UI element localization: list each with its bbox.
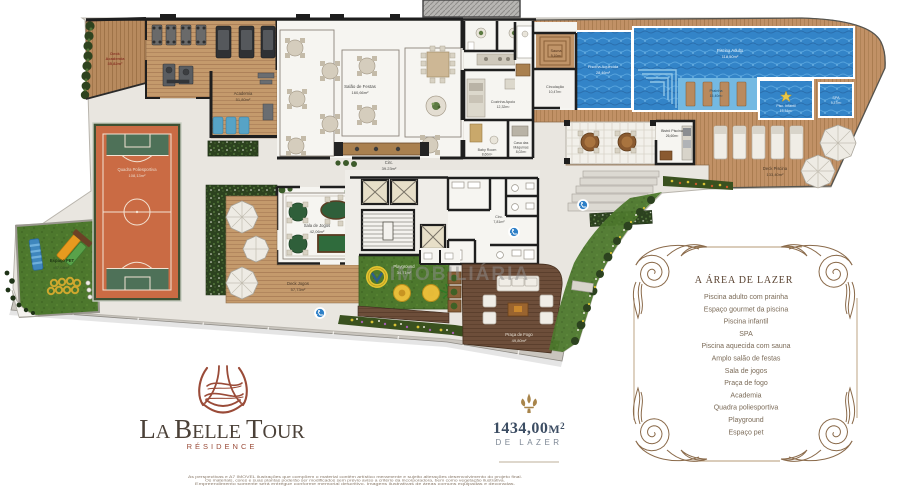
svg-text:9,37m²: 9,37m² [831,101,842,105]
svg-text:Salão de Festas: Salão de Festas [344,84,377,89]
svg-text:Circ.: Circ. [385,160,394,165]
svg-text:Circ.: Circ. [495,215,503,219]
svg-text:DE LAZER: DE LAZER [495,438,562,447]
svg-text:15,34m²: 15,34m² [780,109,793,113]
svg-text:A ÁREA DE LAZER: A ÁREA DE LAZER [695,274,793,286]
svg-text:118,50m²: 118,50m² [722,54,739,59]
svg-text:Piscina infantil: Piscina infantil [724,319,769,326]
svg-text:IMOBILIÁRIA: IMOBILIÁRIA [390,263,530,285]
svg-text:Empreendimento somente será en: Empreendimento somente será entregue con… [195,482,515,486]
svg-text:160,66m²: 160,66m² [352,90,370,95]
svg-text:51,80m²: 51,80m² [236,97,251,102]
svg-text:28,46m²: 28,46m² [596,71,611,75]
svg-text:Espaço pet: Espaço pet [728,429,763,436]
svg-text:Praça de Fogo: Praça de Fogo [505,332,533,337]
svg-text:Sala de jogos: Sala de jogos [725,368,768,375]
svg-text:Espaço PET: Espaço PET [50,258,75,263]
svg-text:49,80m²: 49,80m² [512,338,527,343]
svg-text:35,82m²: 35,82m² [108,61,124,66]
svg-text:Bistrô Piscina: Bistrô Piscina [661,129,683,133]
svg-text:1434,00M2: 1434,00M2 [493,420,565,437]
svg-text:Casa das: Casa das [514,141,529,145]
svg-text:Deck Jogos: Deck Jogos [287,281,309,286]
svg-text:Piscina adulto com prainha: Piscina adulto com prainha [704,294,788,301]
svg-text:Máquinas: Máquinas [513,146,528,150]
svg-text:57,08m²: 57,08m² [55,265,70,270]
svg-text:Piscina aquecida com sauna: Piscina aquecida com sauna [701,343,790,350]
svg-text:57,73m²: 57,73m² [291,287,306,292]
svg-text:Cozinha Apoio: Cozinha Apoio [491,100,516,104]
svg-text:Sala de Jogos: Sala de Jogos [304,223,331,228]
svg-text:15,40m²: 15,40m² [710,94,724,98]
svg-text:Piscina Adulto: Piscina Adulto [717,48,744,53]
svg-text:Circulação: Circulação [546,85,564,89]
svg-text:26,60m²: 26,60m² [666,134,679,138]
svg-text:Academia: Academia [730,392,761,399]
svg-text:Deck Piscina: Deck Piscina [763,166,788,171]
svg-text:9,10m²: 9,10m² [551,54,562,58]
svg-text:10,47m²: 10,47m² [549,90,562,94]
svg-text:Pisc. Infantil: Pisc. Infantil [776,104,796,108]
svg-text:Piscina Aquecida: Piscina Aquecida [588,64,619,69]
svg-text:108,13m²: 108,13m² [129,173,147,178]
svg-text:8,60m²: 8,60m² [482,153,493,157]
svg-text:8,02m²: 8,02m² [516,150,527,154]
svg-text:SPA: SPA [832,96,840,100]
svg-text:12,32m²: 12,32m² [497,105,511,109]
svg-text:Quadra poliesportiva: Quadra poliesportiva [714,405,779,412]
svg-text:Espaço gourmet da piscina: Espaço gourmet da piscina [704,306,789,313]
svg-text:Baby Room: Baby Room [478,148,497,152]
svg-text:RÉSIDENCE: RÉSIDENCE [187,442,258,451]
svg-text:Amplo salão de festas: Amplo salão de festas [712,356,781,363]
svg-text:Playground: Playground [728,417,764,424]
svg-text:SPA: SPA [739,331,753,338]
svg-text:133,40m²: 133,40m² [767,172,785,177]
svg-text:Sauna: Sauna [551,49,563,53]
svg-text:42,06m²: 42,06m² [310,229,325,234]
svg-text:Academia: Academia [234,91,253,96]
svg-text:Quadra Poliesportiva: Quadra Poliesportiva [117,167,157,172]
svg-text:Praça de fogo: Praça de fogo [724,380,768,387]
svg-text:Prainha: Prainha [709,89,723,93]
svg-text:7,81m²: 7,81m² [493,220,505,224]
